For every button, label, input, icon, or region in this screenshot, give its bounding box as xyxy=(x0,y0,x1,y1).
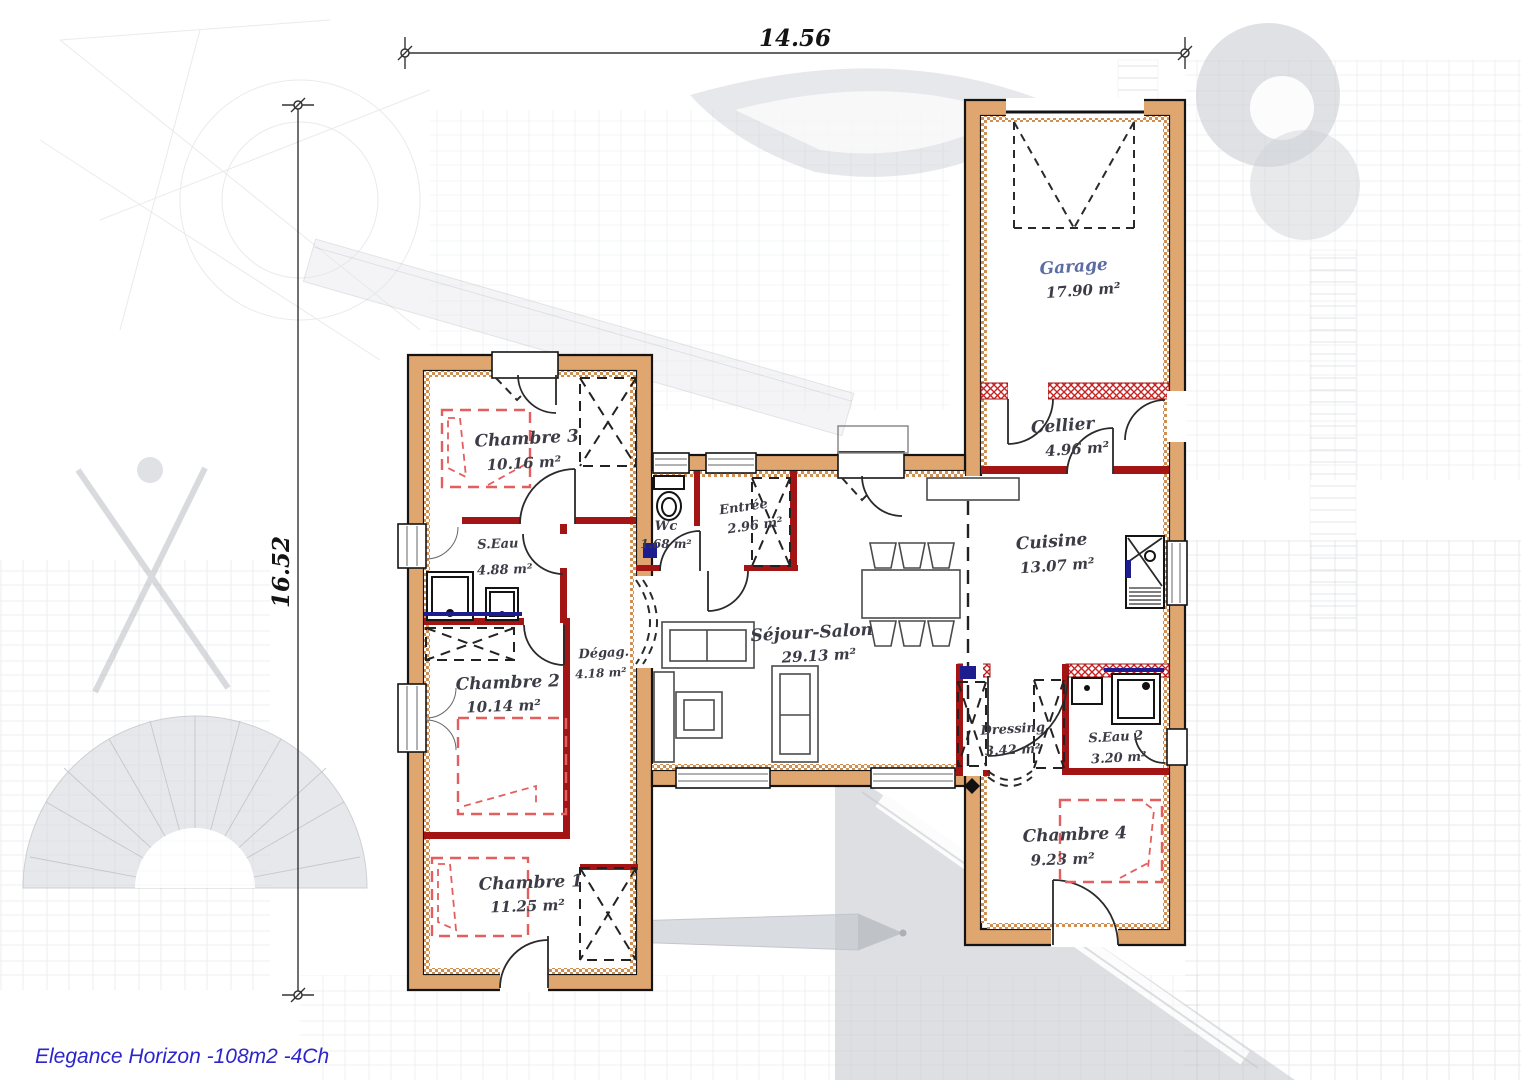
room-name: Chambre 4 xyxy=(1022,823,1127,847)
window xyxy=(398,524,426,568)
room-name: S.Eau xyxy=(477,536,519,552)
room-name: Chambre 2 xyxy=(455,671,560,695)
window xyxy=(398,684,426,752)
dimension-height-value: 16.52 xyxy=(268,536,295,608)
window xyxy=(871,768,955,788)
dining-table-icon xyxy=(862,543,960,646)
shower-icon xyxy=(1112,674,1160,724)
sofa-icon xyxy=(772,666,818,762)
sofa-icon xyxy=(662,622,754,668)
window xyxy=(653,453,689,473)
passage-marker xyxy=(634,576,657,668)
floor-plan-page: Garage 17.90 m² Cellier 4.96 m² Cuisine … xyxy=(0,0,1521,1080)
plumbing-wall xyxy=(424,612,522,616)
room-area: 10.14 m² xyxy=(466,696,542,717)
room-area: 11.25 m² xyxy=(490,896,566,917)
floor-plan-drawing: Garage 17.90 m² Cellier 4.96 m² Cuisine … xyxy=(0,0,1521,1080)
dimension-width-value: 14.56 xyxy=(759,25,831,52)
room-area: 9.23 m² xyxy=(1030,849,1095,869)
plumbing-wall xyxy=(1104,668,1164,672)
room-name: S.Eau 2 xyxy=(1088,729,1144,747)
room-area: 4.88 m² xyxy=(477,562,533,579)
window xyxy=(1167,541,1187,605)
kitchen-unit-icon xyxy=(1126,536,1164,608)
window xyxy=(676,768,770,788)
room-name: Dégag. xyxy=(577,645,629,663)
plan-title: Elegance Horizon -108m2 -4Ch xyxy=(35,1045,329,1068)
toilet-icon xyxy=(654,476,684,520)
armchair-icon xyxy=(676,692,722,738)
window xyxy=(706,453,756,473)
middle-top-wall xyxy=(652,455,965,471)
room-area: 1.68 m² xyxy=(640,537,691,551)
room-name: Wc xyxy=(655,519,678,534)
room-area: 3.42 m² xyxy=(985,742,1042,760)
console-icon xyxy=(654,672,674,762)
kitchen-counter-icon xyxy=(927,478,1019,500)
sink-icon xyxy=(1072,678,1102,704)
room-name: Chambre 1 xyxy=(478,871,583,895)
room-area: 4.18 m² xyxy=(575,665,627,682)
electrical-panel-icon xyxy=(960,666,976,679)
room-area: 3.20 m² xyxy=(1091,749,1148,767)
